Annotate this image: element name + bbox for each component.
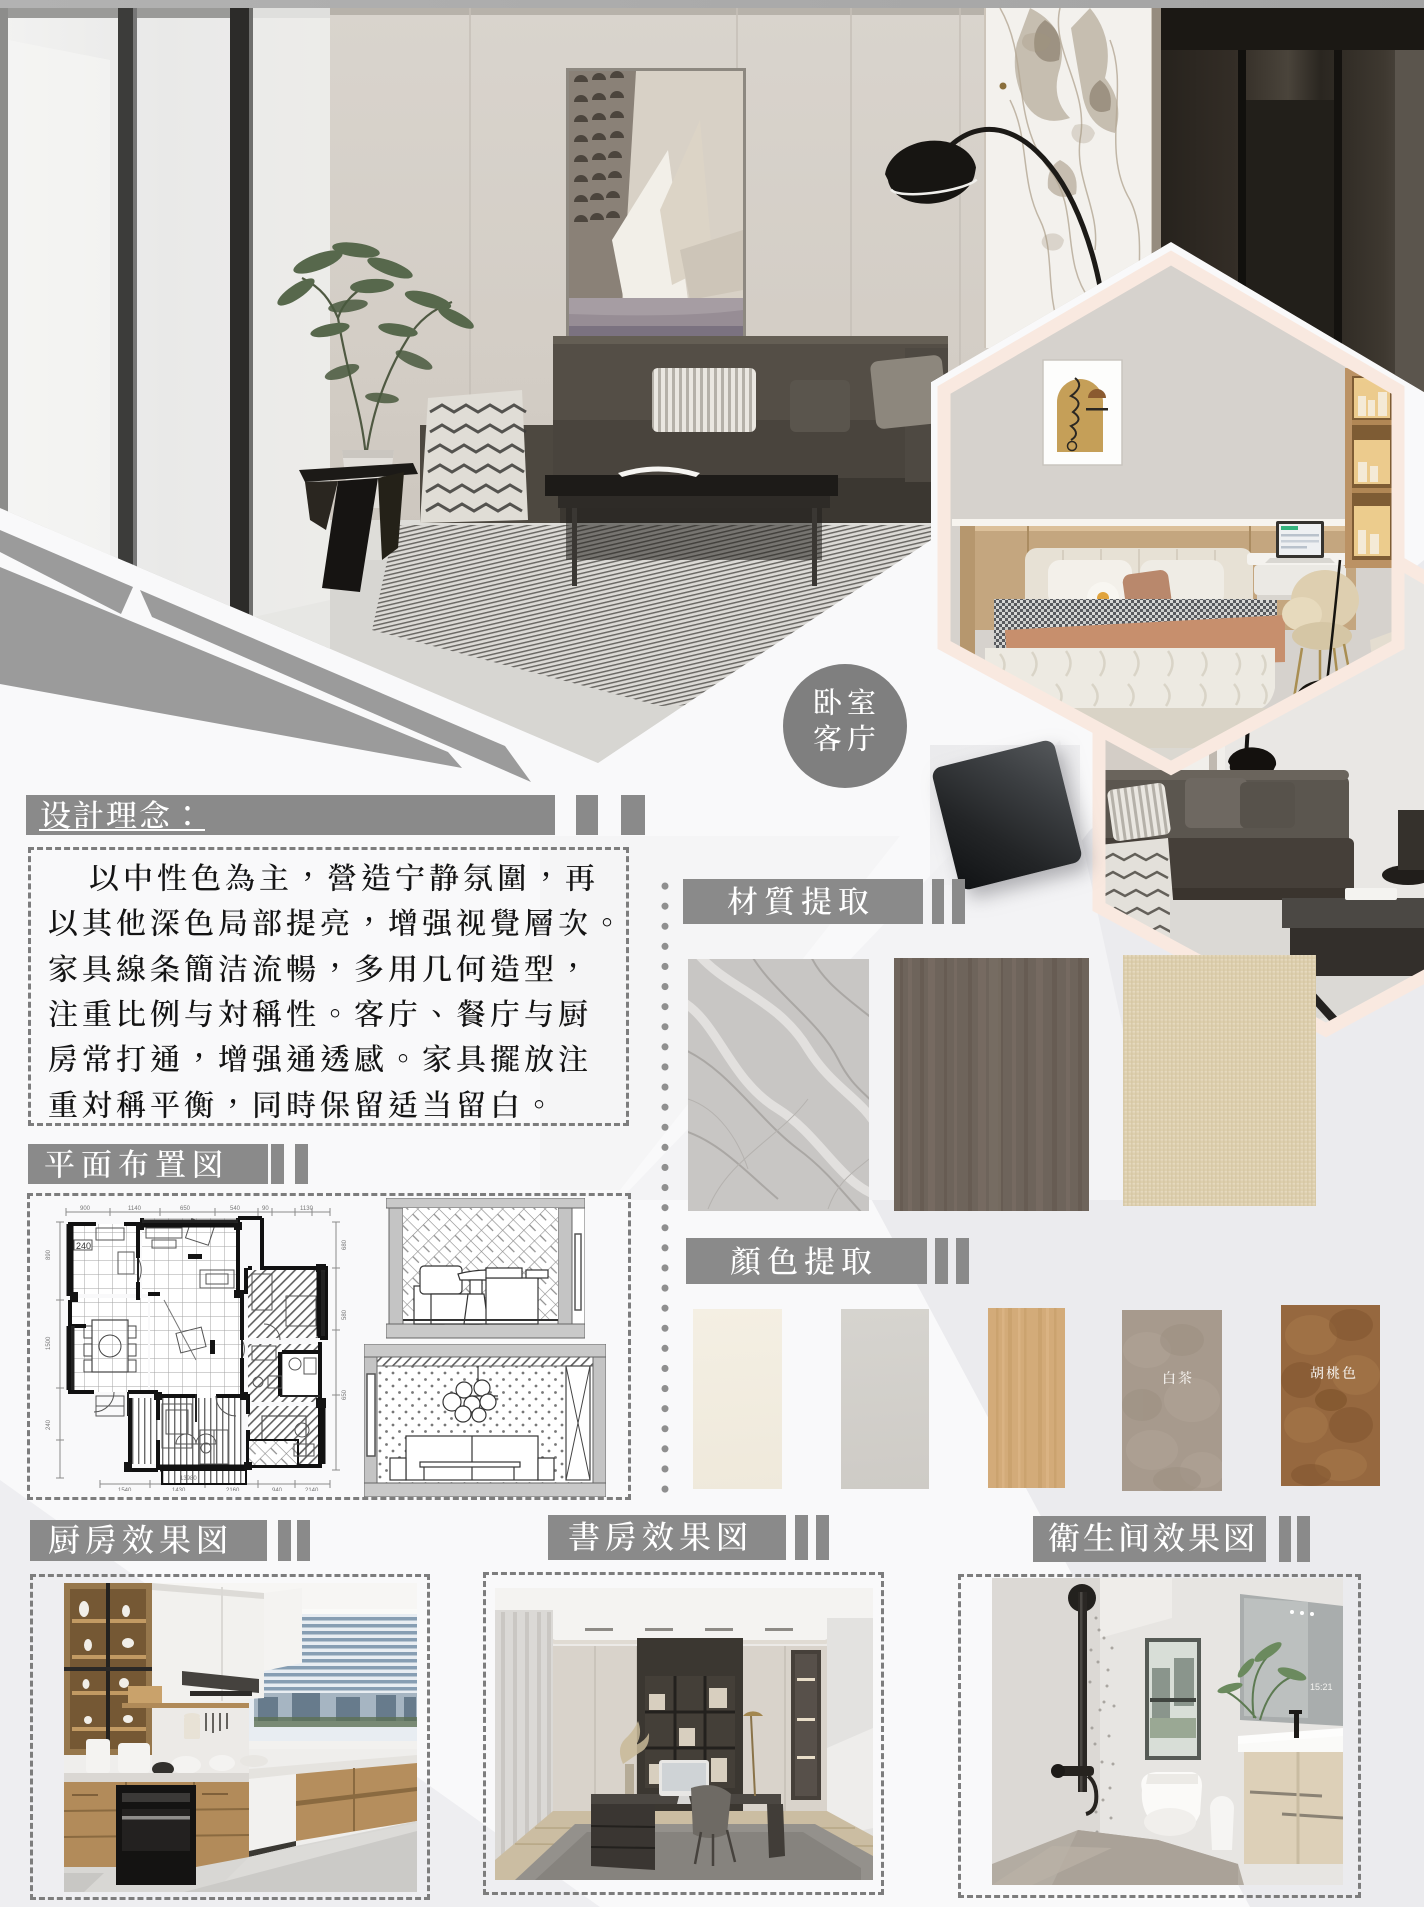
svg-text:1130: 1130 (300, 1206, 314, 1212)
svg-text:900: 900 (80, 1206, 91, 1212)
svg-text:680: 680 (342, 1239, 348, 1250)
svg-text:650: 650 (180, 1206, 191, 1212)
svg-text:240: 240 (46, 1419, 52, 1430)
svg-text:2160: 2160 (226, 1488, 240, 1491)
svg-text:650: 650 (342, 1389, 348, 1400)
svg-text:940: 940 (272, 1488, 283, 1491)
svg-text:90: 90 (262, 1206, 269, 1212)
svg-text:240: 240 (76, 1241, 91, 1251)
svg-text:890: 890 (46, 1249, 52, 1260)
svg-text:13980: 13980 (180, 1476, 197, 1482)
svg-text:1140: 1140 (128, 1206, 142, 1212)
svg-text:15:21: 15:21 (1310, 1682, 1333, 1692)
svg-text:1500: 1500 (46, 1336, 52, 1350)
svg-text:580: 580 (342, 1309, 348, 1320)
svg-text:1430: 1430 (172, 1488, 186, 1491)
svg-text:2140: 2140 (305, 1488, 319, 1491)
svg-text:540: 540 (230, 1206, 241, 1212)
svg-text:1540: 1540 (118, 1488, 132, 1491)
